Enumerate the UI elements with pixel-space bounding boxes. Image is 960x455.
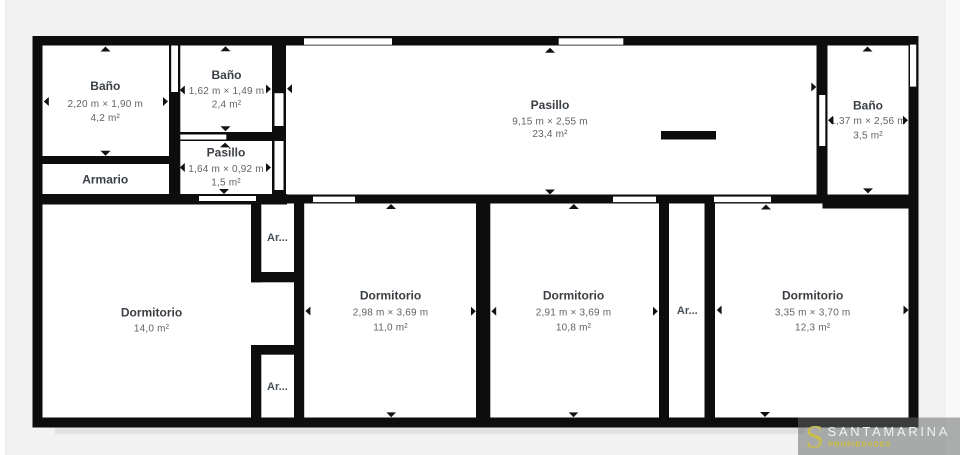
svg-text:Dormitorio: Dormitorio xyxy=(782,289,843,303)
svg-text:1,37 m × 2,56 m: 1,37 m × 2,56 m xyxy=(830,116,906,127)
svg-text:Baño: Baño xyxy=(853,98,883,112)
svg-text:Pasillo: Pasillo xyxy=(531,98,570,112)
svg-text:Dormitorio: Dormitorio xyxy=(121,305,182,319)
svg-text:3,5 m²: 3,5 m² xyxy=(853,130,883,141)
svg-text:3,35 m × 3,70 m: 3,35 m × 3,70 m xyxy=(775,307,851,318)
svg-text:1,64 m × 0,92 m: 1,64 m × 0,92 m xyxy=(188,164,264,175)
svg-text:Baño: Baño xyxy=(212,68,242,82)
svg-text:S: S xyxy=(806,419,824,455)
svg-text:2,4 m²: 2,4 m² xyxy=(212,100,242,111)
svg-text:2,98 m × 3,69 m: 2,98 m × 3,69 m xyxy=(353,307,429,318)
svg-text:Ar...: Ar... xyxy=(267,232,288,244)
svg-text:Pasillo: Pasillo xyxy=(207,146,246,160)
svg-text:1,5 m²: 1,5 m² xyxy=(211,177,241,188)
svg-text:9,15 m × 2,55 m: 9,15 m × 2,55 m xyxy=(512,117,588,128)
svg-text:2,20 m × 1,90 m: 2,20 m × 1,90 m xyxy=(68,99,144,110)
svg-text:Ar...: Ar... xyxy=(267,381,288,393)
svg-text:Armario: Armario xyxy=(82,173,128,187)
svg-text:1,62 m × 1,49 m: 1,62 m × 1,49 m xyxy=(189,86,265,97)
svg-text:14,0 m²: 14,0 m² xyxy=(134,323,170,334)
svg-text:SANTAMARINA: SANTAMARINA xyxy=(828,424,951,439)
svg-text:10,8 m²: 10,8 m² xyxy=(556,322,592,333)
svg-text:Ar...: Ar... xyxy=(677,305,698,317)
svg-text:23,4 m²: 23,4 m² xyxy=(532,129,568,140)
svg-text:Dormitorio: Dormitorio xyxy=(543,289,604,303)
svg-text:PROPIEDADES: PROPIEDADES xyxy=(829,439,892,448)
svg-text:11,0 m²: 11,0 m² xyxy=(373,322,408,333)
svg-text:12,3 m²: 12,3 m² xyxy=(795,322,831,333)
svg-text:2,91 m × 3,69 m: 2,91 m × 3,69 m xyxy=(536,307,612,318)
svg-text:Dormitorio: Dormitorio xyxy=(360,289,421,303)
svg-text:4,2 m²: 4,2 m² xyxy=(91,113,121,124)
svg-text:Baño: Baño xyxy=(90,79,120,93)
